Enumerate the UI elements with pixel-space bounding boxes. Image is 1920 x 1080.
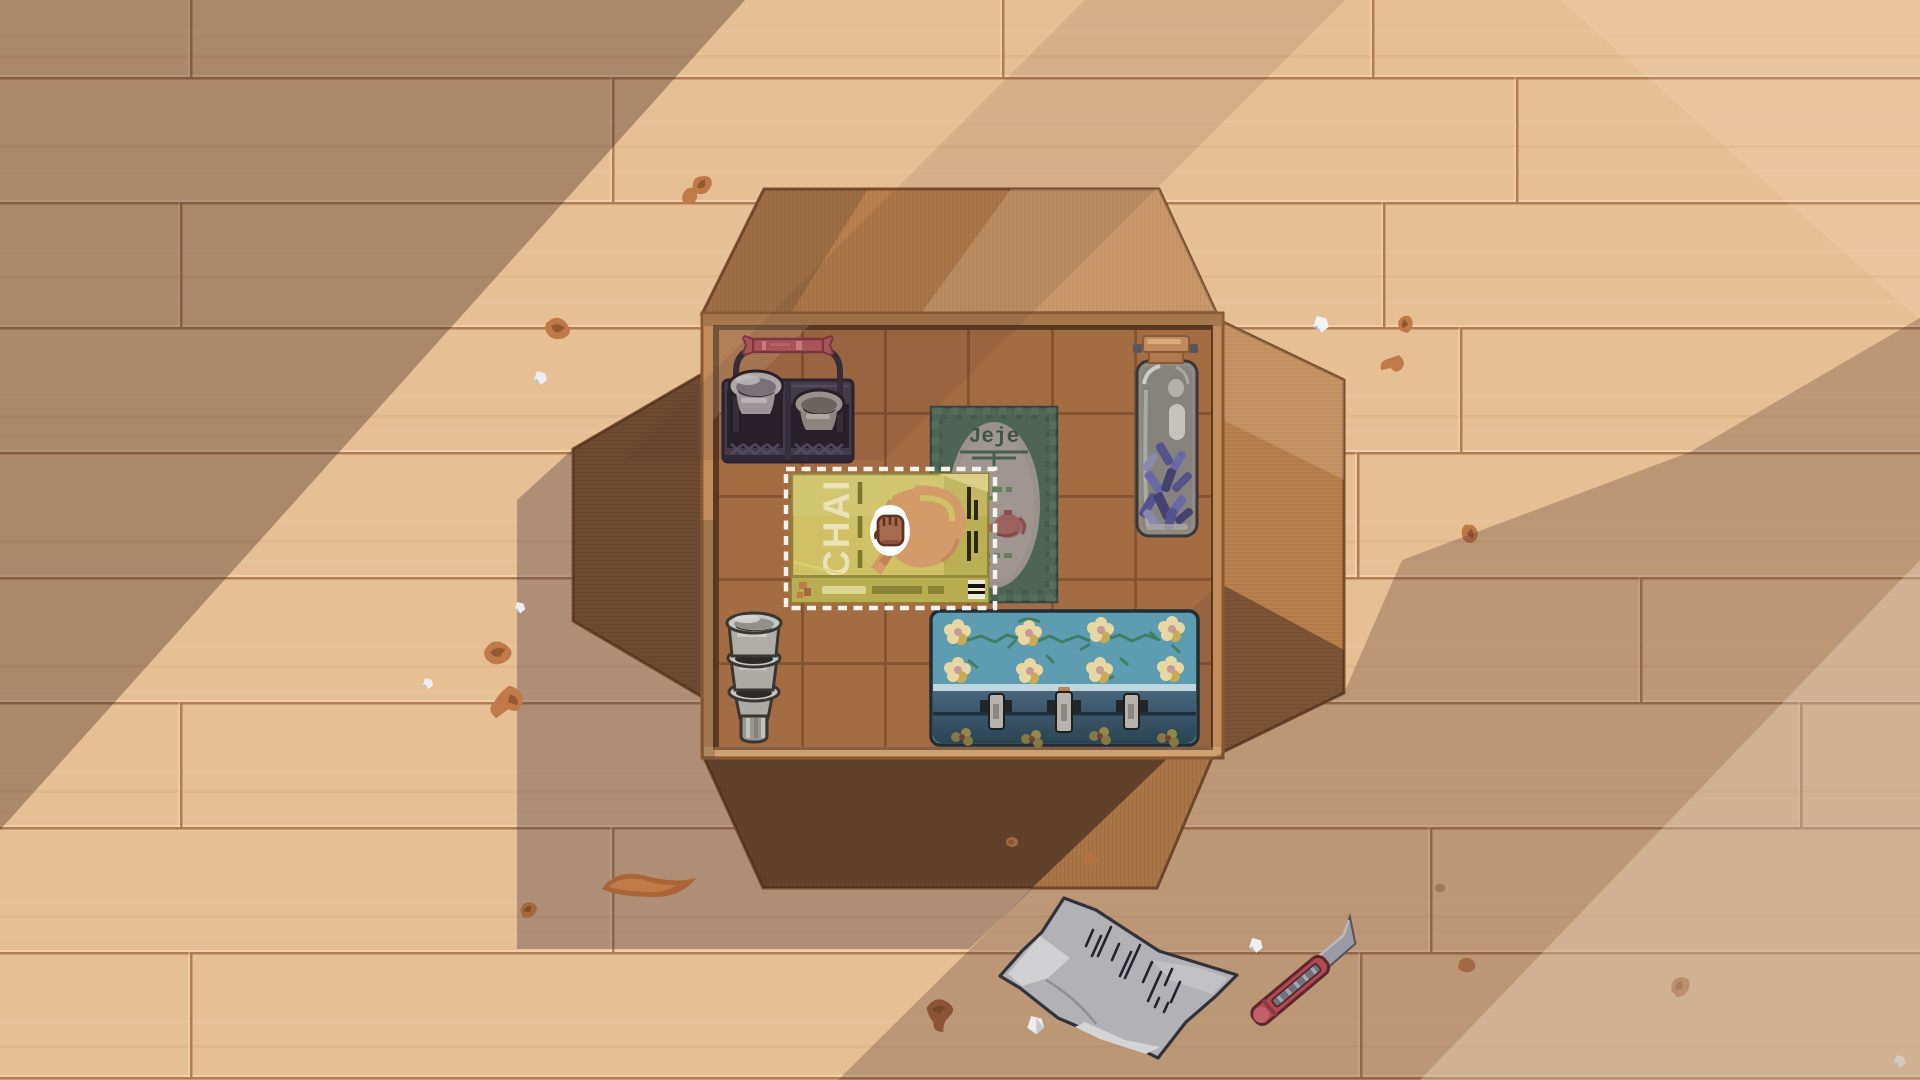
svg-text:CHAI: CHAI <box>816 479 857 577</box>
svg-text:Jeje: Jeje <box>969 426 1019 449</box>
